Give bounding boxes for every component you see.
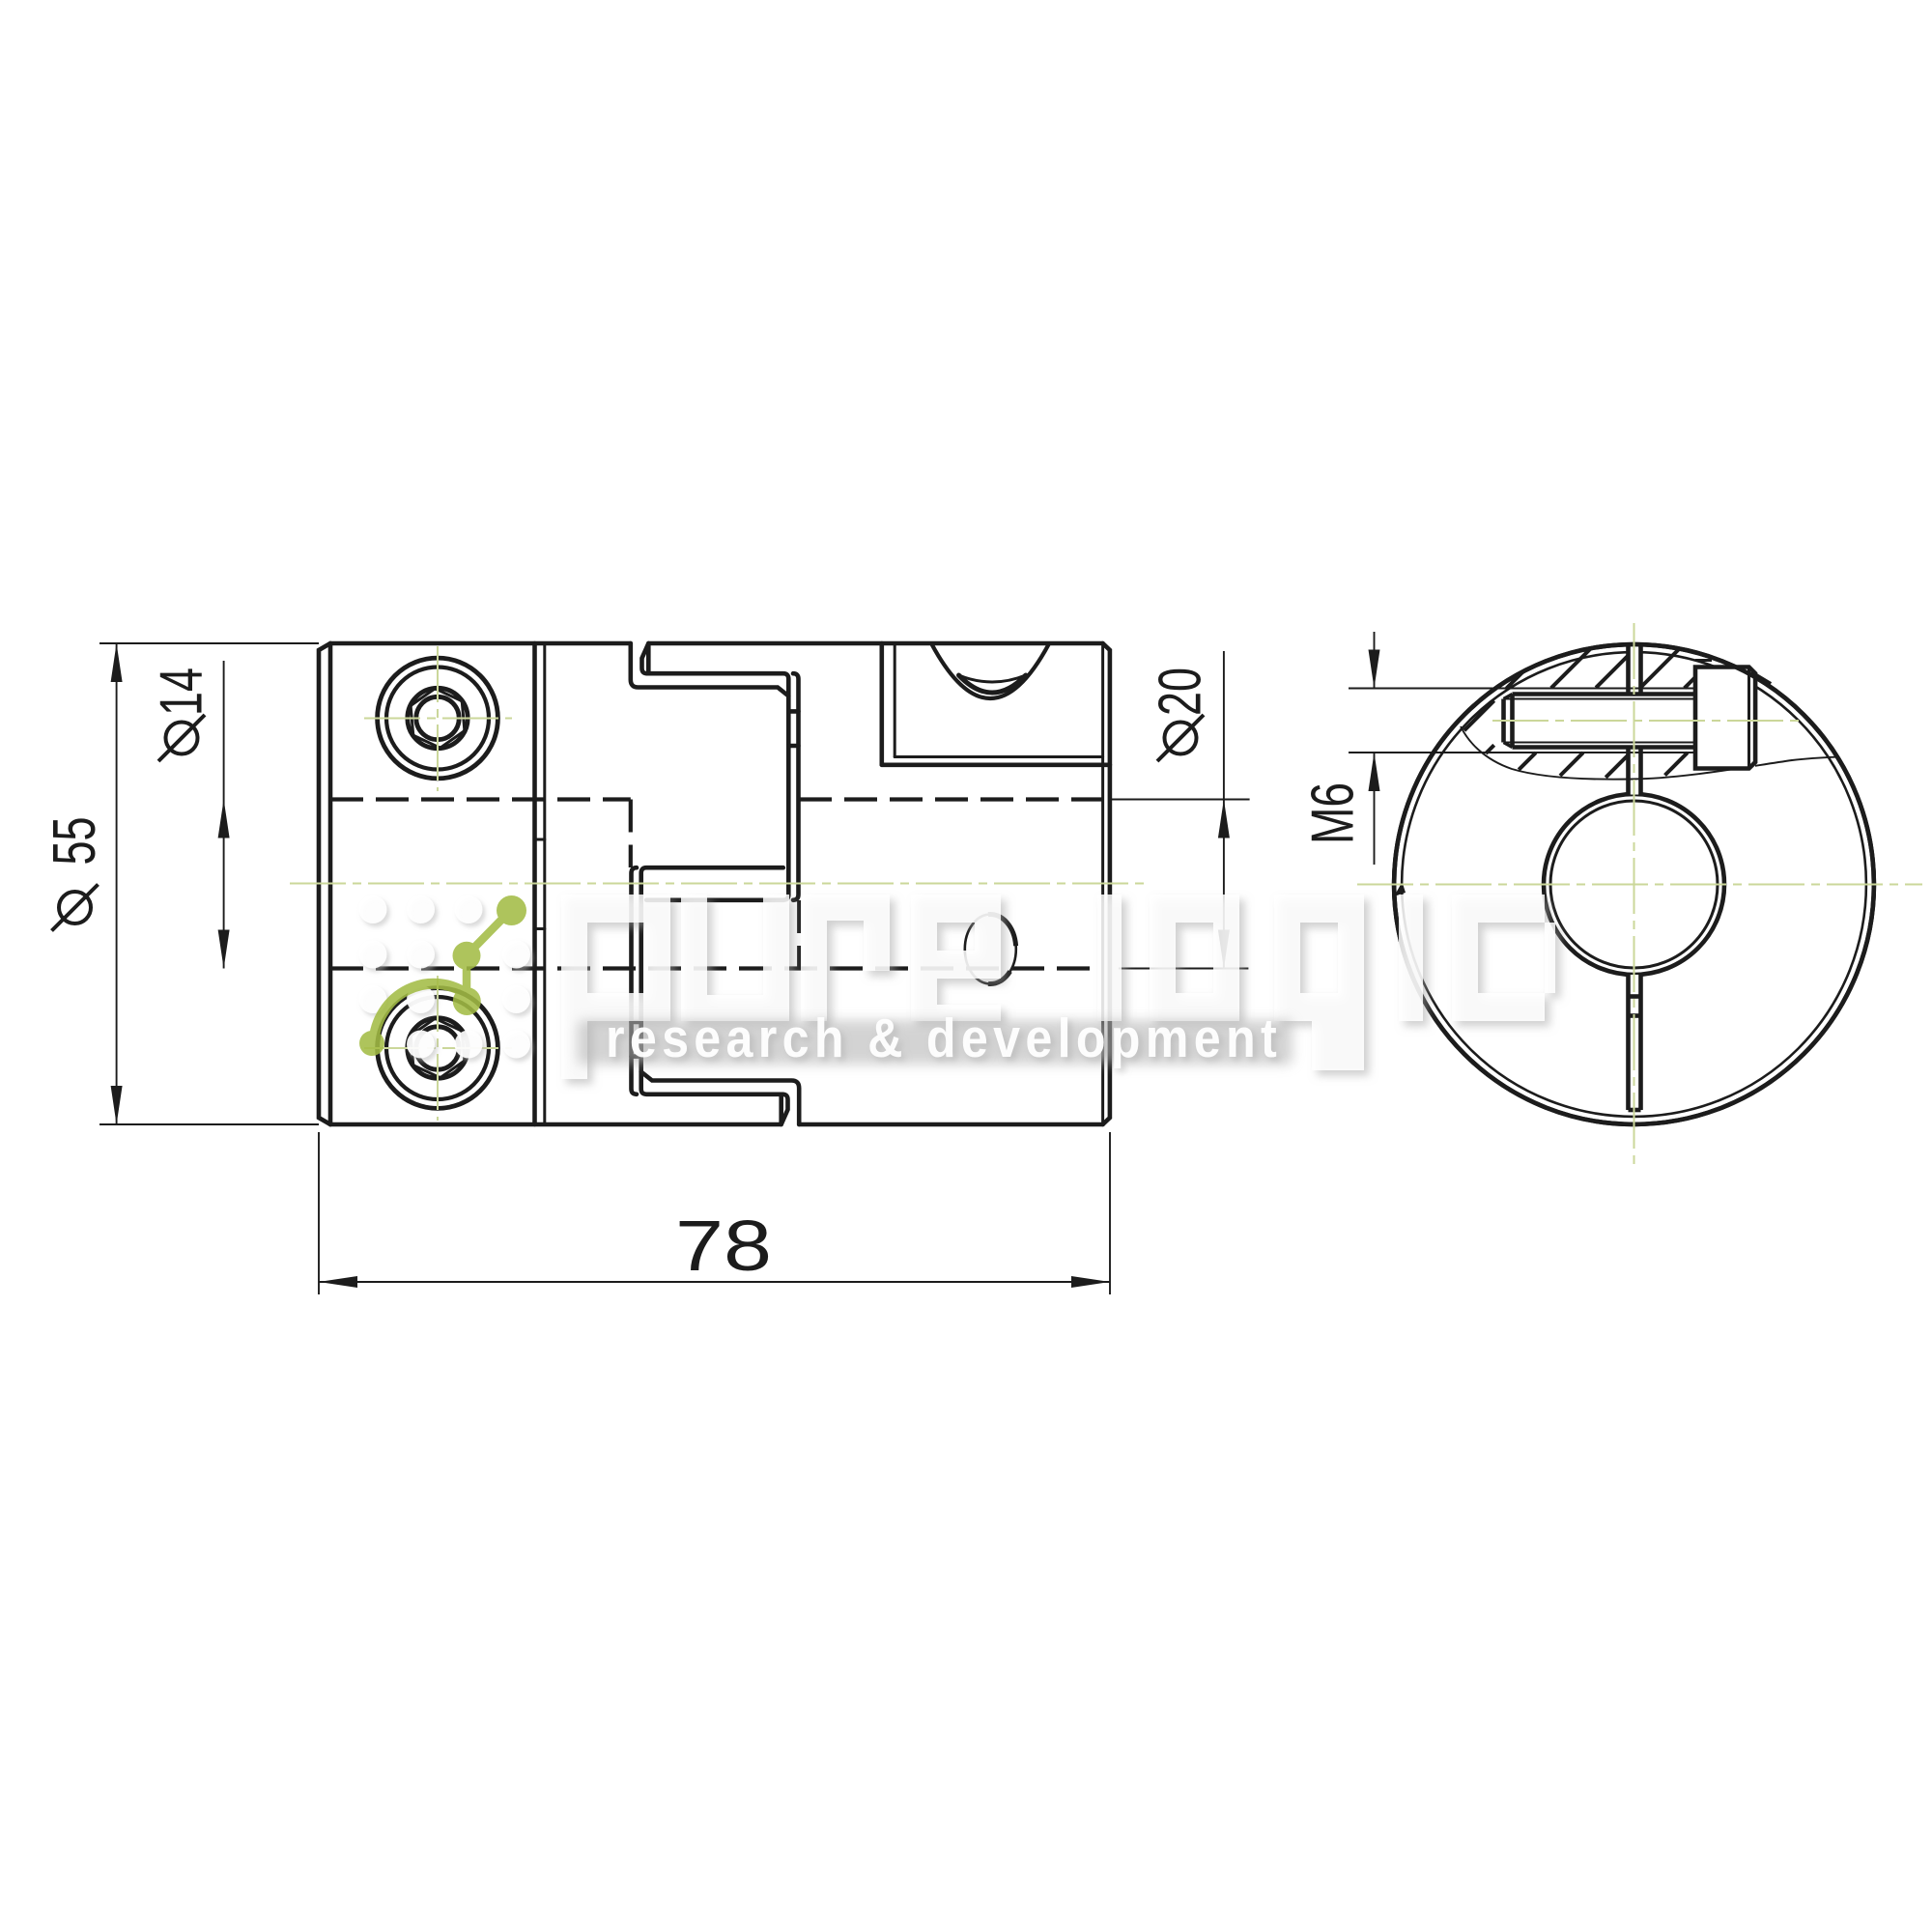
svg-text:55: 55: [42, 817, 108, 866]
svg-text:78: 78: [675, 1206, 772, 1286]
svg-text:M6: M6: [1300, 782, 1367, 844]
svg-text:20: 20: [1148, 668, 1214, 716]
svg-text:research & development: research & development: [606, 1008, 1282, 1069]
svg-text:14: 14: [149, 668, 215, 716]
